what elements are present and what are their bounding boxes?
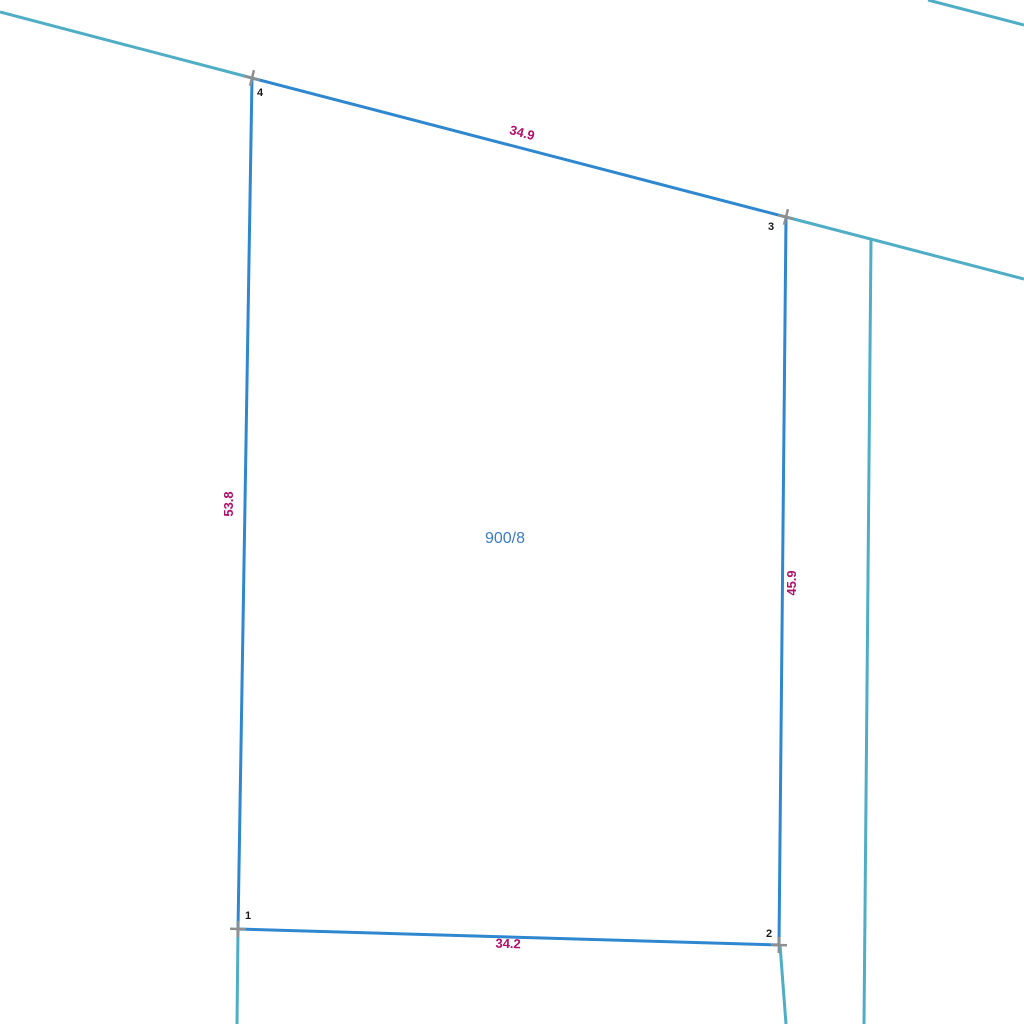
map-svg: 432134.945.953.834.2900/8 — [0, 0, 1024, 1024]
dimension-label-34.2: 34.2 — [495, 936, 521, 952]
dimension-label-34.9: 34.9 — [508, 122, 536, 143]
adjacent-boundary-line-boundary-right-vertical[interactable] — [864, 240, 871, 1024]
survey-point-marker-2 — [771, 937, 788, 954]
adjacent-boundary-line-corner-line-topright[interactable] — [928, 0, 1024, 25]
vertex-number-label-3: 3 — [768, 221, 774, 233]
map-canvas[interactable]: 432134.945.953.834.2900/8 — [0, 0, 1024, 1024]
vertex-number-label-4: 4 — [257, 87, 264, 99]
vertex-number-label-1: 1 — [245, 910, 251, 922]
adjacent-boundary-line-road-line-right[interactable] — [786, 217, 1024, 279]
adjacent-boundary-line-road-line-left[interactable] — [0, 12, 252, 78]
adjacent-boundary-line-boundary-below-point2[interactable] — [780, 945, 786, 1024]
survey-point-cross-arm — [238, 921, 239, 937]
adjacent-boundary-line-boundary-below-point1[interactable] — [237, 929, 238, 1024]
survey-point-marker-1 — [230, 921, 247, 938]
vertex-number-label-2: 2 — [766, 928, 772, 940]
dimension-label-53.8: 53.8 — [221, 491, 236, 516]
dimension-label-45.9: 45.9 — [784, 570, 799, 595]
survey-point-cross-arm — [779, 937, 780, 953]
parcel-number-label: 900/8 — [485, 530, 525, 547]
parcel-outline[interactable] — [238, 78, 786, 945]
